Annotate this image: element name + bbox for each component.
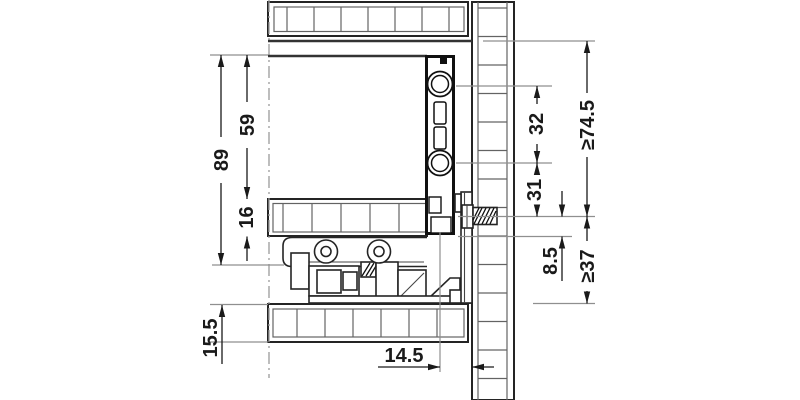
runner-mid-detail [317, 270, 341, 293]
dimension-89: 89 [211, 55, 233, 265]
dimension-16: 16 [236, 206, 258, 261]
profile-lower-detail [429, 197, 441, 213]
dimension-label: 89 [211, 149, 233, 171]
arrowhead-down [244, 187, 250, 199]
dimension-label: 15.5 [200, 319, 222, 358]
drawer-slide-section-drawing: 89 59 16 15.5 14.5 32 [0, 0, 800, 400]
technical-drawing-page: 89 59 16 15.5 14.5 32 [0, 0, 800, 400]
shelf-outline [268, 304, 468, 342]
arrowhead-down [584, 205, 590, 217]
dimension-label: 59 [237, 114, 259, 136]
dimension-15-5: 15.5 [200, 305, 225, 364]
profile-top-notch [440, 56, 447, 64]
runner-right-block [376, 262, 398, 298]
fixing-slot [434, 127, 446, 149]
dimension-min-74-5: ≥74.5 [577, 41, 599, 217]
dimension-label: ≥74.5 [577, 100, 599, 150]
cabinet-top-panel [268, 2, 468, 36]
dimension-min-37: ≥37 [577, 217, 599, 304]
drawer-side-profile [427, 56, 454, 234]
arrowhead-up [244, 237, 250, 249]
arrowhead-up [218, 55, 224, 67]
arrowhead-down [218, 253, 224, 265]
dimension-label: 31 [524, 179, 546, 201]
profile-lower-detail [431, 217, 451, 233]
runner-screw-center [374, 247, 384, 257]
arrowhead-down [534, 205, 540, 217]
dimension-label: 32 [526, 113, 548, 135]
arrowhead-up [584, 41, 590, 53]
arrowhead-down [584, 292, 590, 304]
arrowhead-up [559, 237, 565, 249]
fixing-slot [434, 102, 446, 124]
arrowhead-up [584, 217, 590, 229]
drawer-runner-mechanism [283, 238, 472, 304]
dimension-label: 14.5 [385, 345, 424, 367]
runner-screw-center [321, 247, 331, 257]
runner-left-block [291, 253, 309, 289]
arrowhead-up [244, 55, 250, 67]
cabinet-rear-panel [472, 2, 514, 400]
dimension-label: 16 [236, 206, 258, 228]
drawer-bottom-outline [268, 199, 427, 236]
arrowhead-down [559, 205, 565, 217]
arrowhead-up [534, 86, 540, 98]
dimension-32: 32 [526, 86, 548, 163]
arrowhead-down [534, 151, 540, 163]
arrowhead-up [219, 305, 225, 317]
runner-mid-detail [343, 272, 357, 290]
arrowhead-up [534, 163, 540, 175]
dimension-59: 59 [237, 55, 259, 199]
cabinet-bottom-shelf [268, 304, 468, 342]
bracket-hook [455, 194, 461, 212]
runner-bottom-rail [309, 296, 470, 303]
dimension-label: 8.5 [540, 247, 562, 275]
dimension-31: 31 [524, 163, 546, 217]
drawer-bottom-panel [268, 199, 427, 236]
arrowhead-right [428, 364, 440, 370]
fixing-boss-top-hole [432, 76, 449, 93]
fixing-boss-bottom-hole [432, 155, 449, 172]
dimension-label: ≥37 [577, 249, 599, 282]
